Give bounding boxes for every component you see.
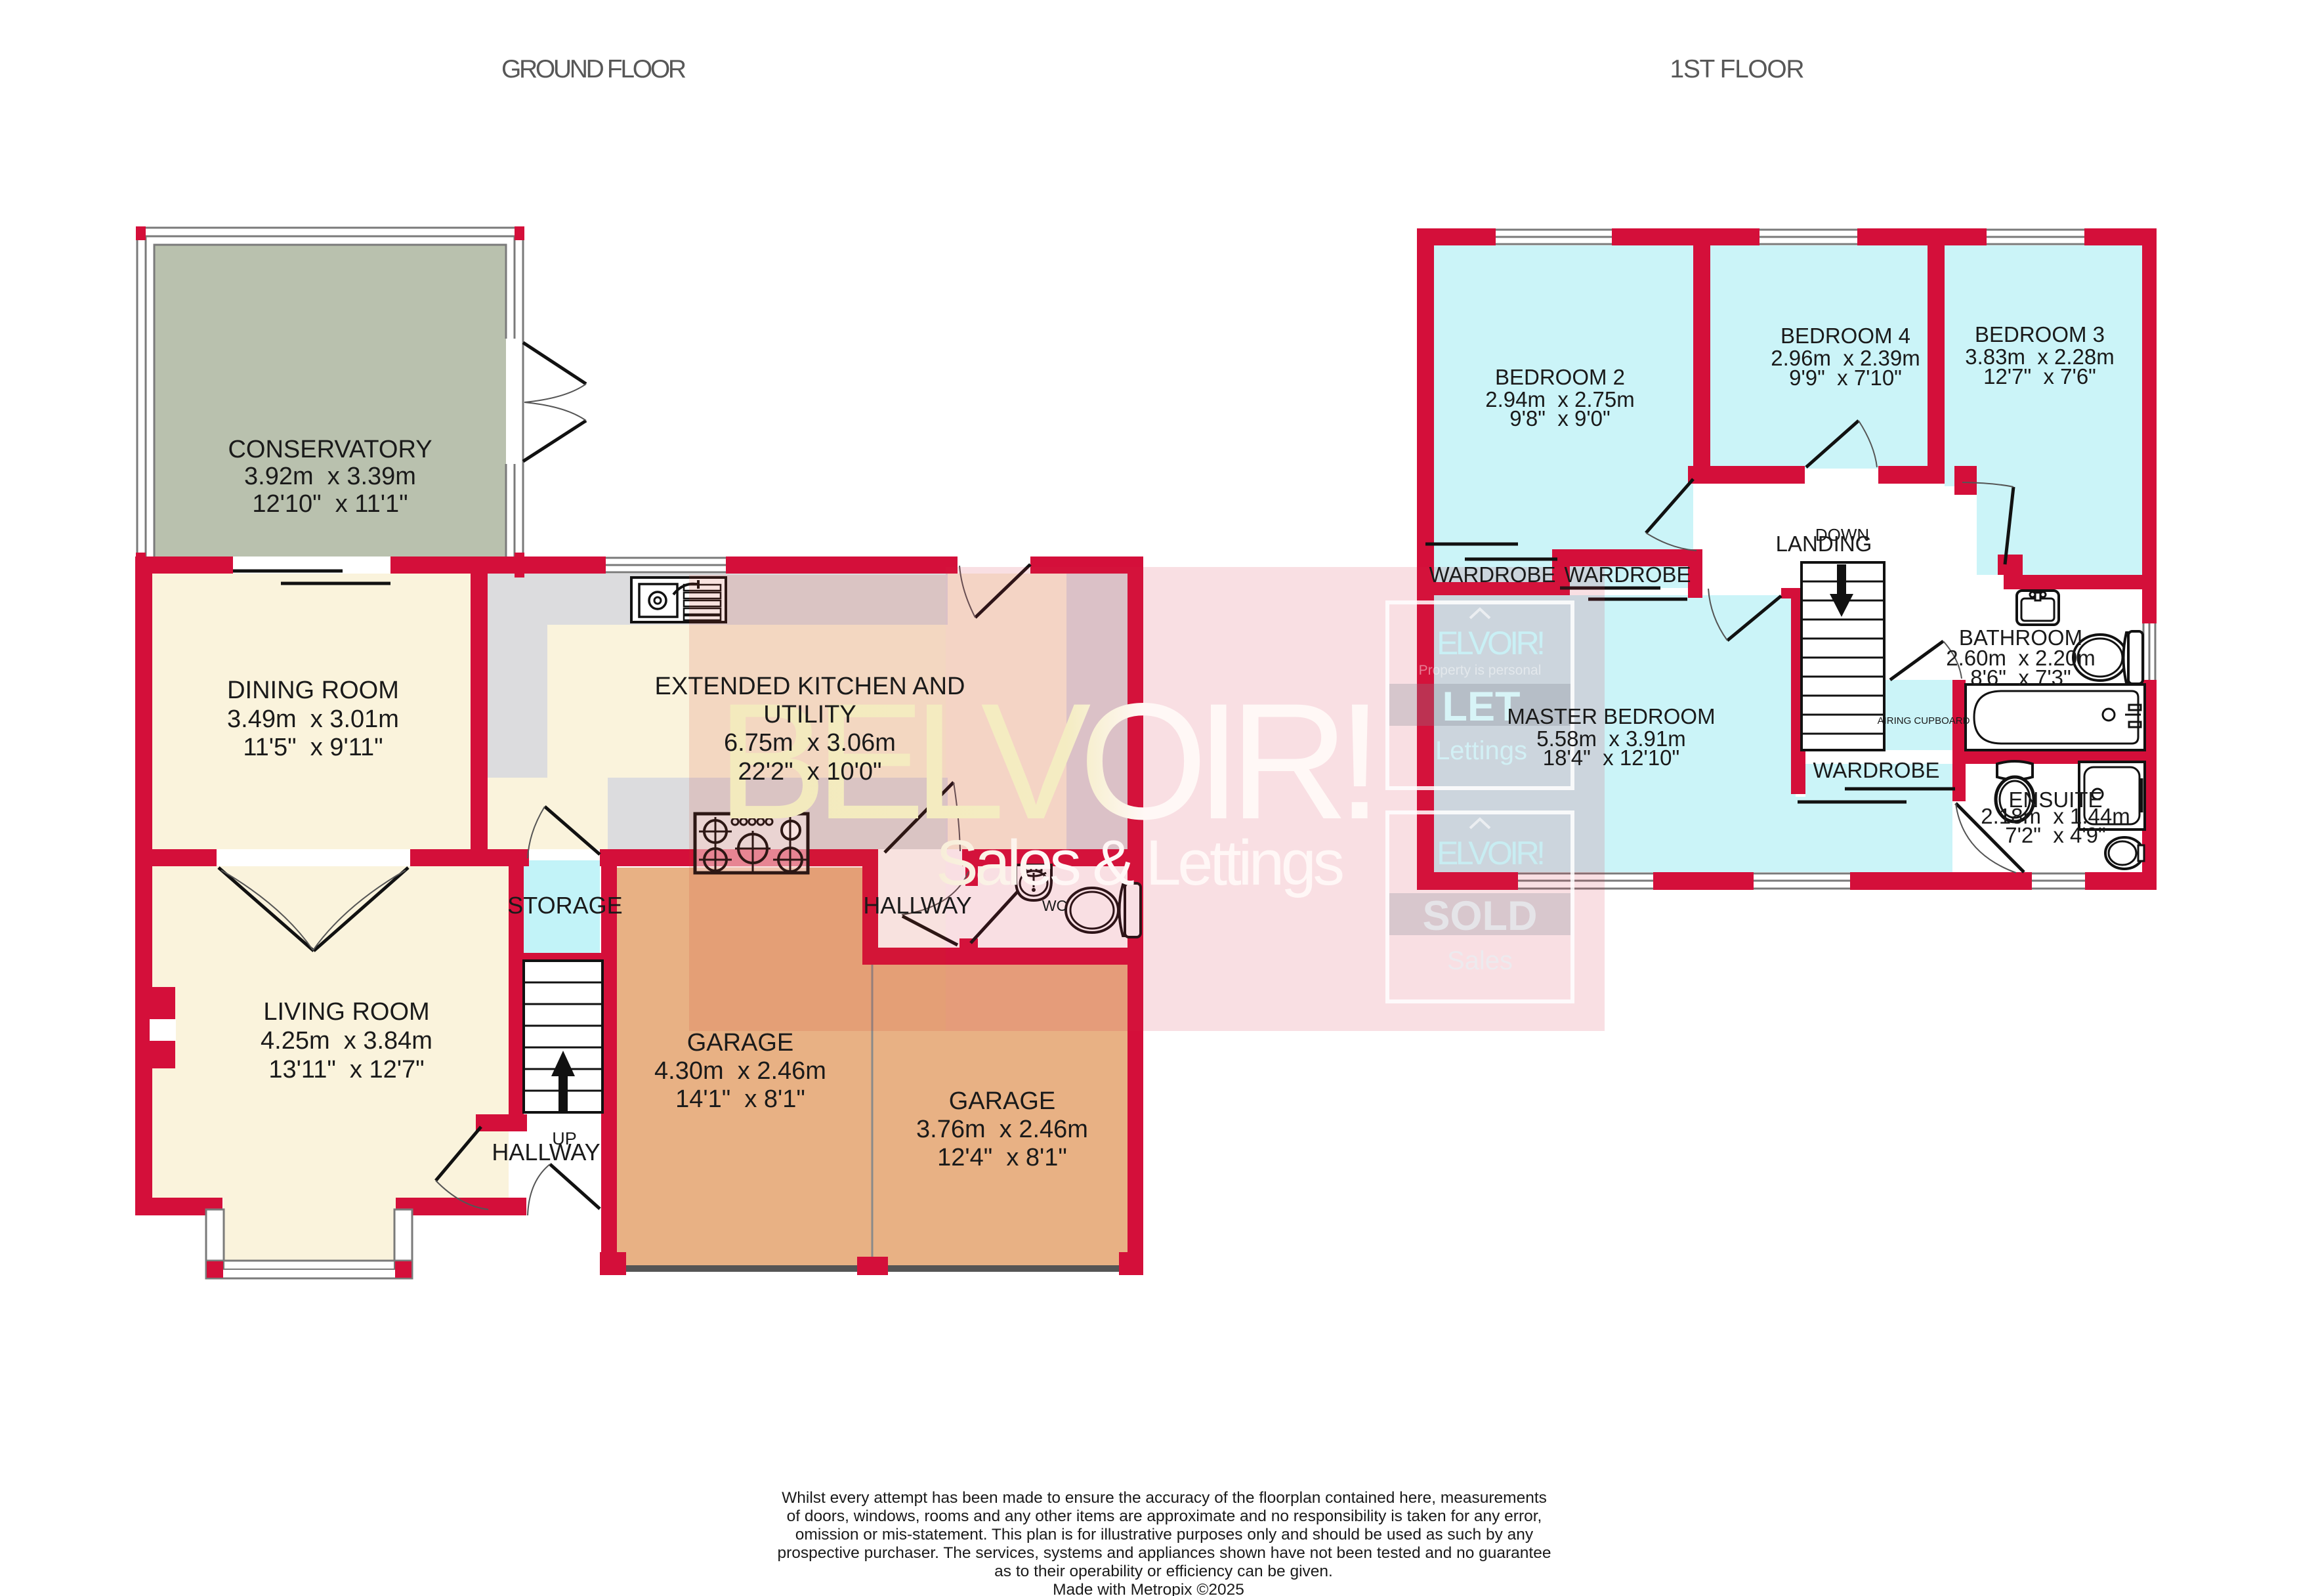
svg-text:WC: WC (1042, 897, 1067, 914)
svg-text:BEDROOM 4: BEDROOM 4 (1781, 324, 1910, 348)
svg-text:3.49m x 3.01m: 3.49m x 3.01m (227, 705, 399, 733)
svg-text:of doors, windows, rooms and a: of doors, windows, rooms and any other i… (787, 1507, 1542, 1525)
svg-text:12'10" x 11'1": 12'10" x 11'1" (252, 490, 408, 518)
svg-text:Sales: Sales (1447, 946, 1513, 975)
svg-text:ELVOIR!: ELVOIR! (1437, 835, 1546, 871)
svg-text:WARDROBE: WARDROBE (1429, 562, 1555, 587)
svg-text:22'2" x 10'0": 22'2" x 10'0" (738, 758, 882, 786)
svg-text:LIVING ROOM: LIVING ROOM (263, 998, 429, 1026)
svg-text:CONSERVATORY: CONSERVATORY (228, 436, 432, 463)
svg-text:Sales & Lettings: Sales & Lettings (936, 827, 1345, 898)
svg-text:HALLWAY: HALLWAY (492, 1139, 600, 1165)
svg-text:UP: UP (552, 1129, 577, 1148)
svg-text:12'4" x 8'1": 12'4" x 8'1" (937, 1144, 1067, 1171)
svg-text:WARDROBE: WARDROBE (1813, 758, 1939, 782)
svg-text:Made with Metropix ©2025: Made with Metropix ©2025 (1053, 1581, 1244, 1596)
svg-text:prospective purchaser. The ser: prospective purchaser. The services, sys… (777, 1544, 1551, 1562)
svg-text:STORAGE: STORAGE (507, 892, 622, 919)
svg-text:8'6" x 7'3": 8'6" x 7'3" (1970, 665, 2071, 690)
svg-text:AIRING CUPBOARD: AIRING CUPBOARD (1878, 715, 1970, 726)
svg-text:omission or mis-statement. Thi: omission or mis-statement. This plan is … (795, 1526, 1534, 1543)
svg-text:3.76m x 2.46m: 3.76m x 2.46m (916, 1116, 1088, 1143)
svg-text:18'4" x 12'10": 18'4" x 12'10" (1543, 745, 1680, 770)
svg-text:14'1" x 8'1": 14'1" x 8'1" (675, 1085, 805, 1113)
svg-text:GROUND FLOOR: GROUND FLOOR (501, 55, 686, 83)
svg-text:3.92m x 3.39m: 3.92m x 3.39m (244, 463, 416, 490)
svg-text:MASTER BEDROOM: MASTER BEDROOM (1507, 704, 1715, 728)
svg-text:HALLWAY: HALLWAY (863, 892, 971, 919)
svg-text:EXTENDED KITCHEN AND: EXTENDED KITCHEN AND (655, 673, 965, 700)
svg-text:Lettings: Lettings (1435, 736, 1527, 765)
svg-text:Whilst every attempt has been: Whilst every attempt has been made to en… (782, 1489, 1547, 1507)
svg-text:UTILITY: UTILITY (763, 701, 856, 728)
svg-text:DOWN: DOWN (1815, 525, 1869, 545)
svg-text:11'5" x 9'11": 11'5" x 9'11" (243, 734, 383, 761)
svg-text:SOLD: SOLD (1422, 893, 1537, 939)
svg-text:WARDROBE: WARDROBE (1564, 562, 1691, 587)
svg-text:ELVOIR!: ELVOIR! (1437, 625, 1546, 661)
svg-text:9'9" x 7'10": 9'9" x 7'10" (1789, 366, 1902, 390)
svg-text:Property is personal: Property is personal (1419, 663, 1542, 678)
svg-text:BEDROOM 3: BEDROOM 3 (1975, 322, 2105, 346)
svg-text:7'2" x 4'9": 7'2" x 4'9" (2005, 823, 2105, 847)
svg-text:9'8" x 9'0": 9'8" x 9'0" (1509, 406, 1610, 430)
svg-text:12'7" x 7'6": 12'7" x 7'6" (1983, 364, 2096, 388)
svg-text:BEDROOM 2: BEDROOM 2 (1495, 365, 1625, 389)
svg-text:as to their operability or eff: as to their operability or efficiency ca… (994, 1563, 1333, 1580)
svg-text:GARAGE: GARAGE (949, 1087, 1056, 1115)
svg-text:4.30m x 2.46m: 4.30m x 2.46m (654, 1057, 826, 1085)
svg-text:GARAGE: GARAGE (687, 1029, 794, 1057)
svg-text:13'11" x 12'7": 13'11" x 12'7" (268, 1056, 424, 1083)
svg-text:1ST FLOOR: 1ST FLOOR (1670, 55, 1805, 83)
svg-text:6.75m x 3.06m: 6.75m x 3.06m (724, 729, 896, 757)
svg-text:4.25m x 3.84m: 4.25m x 3.84m (261, 1027, 432, 1055)
svg-text:DINING ROOM: DINING ROOM (227, 677, 399, 704)
